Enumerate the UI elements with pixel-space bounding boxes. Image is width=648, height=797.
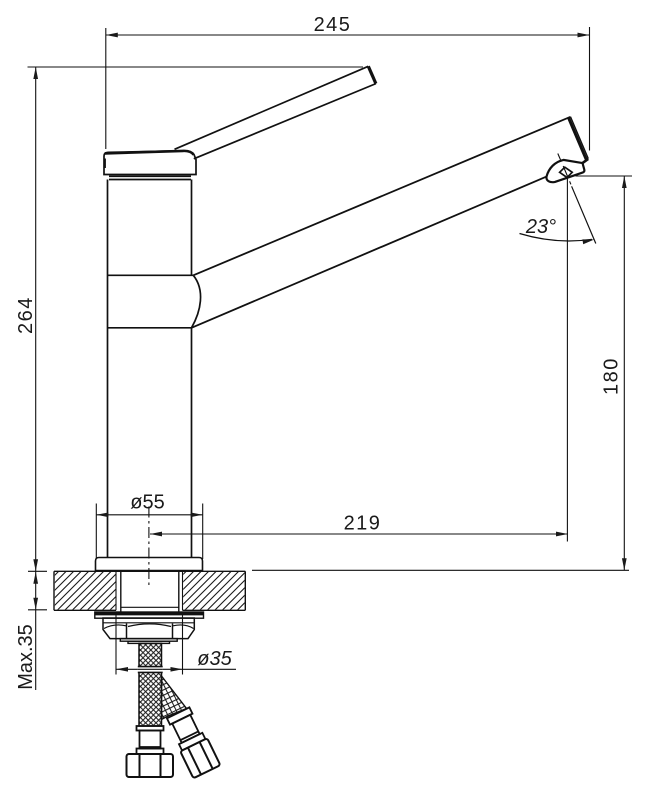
svg-text:Max.35: Max.35 (15, 624, 37, 690)
svg-text:23°: 23° (525, 216, 556, 238)
svg-text:ø55: ø55 (130, 492, 164, 514)
svg-text:180: 180 (601, 357, 623, 395)
svg-text:245: 245 (314, 14, 352, 36)
svg-text:219: 219 (344, 513, 382, 535)
svg-text:ø35: ø35 (197, 648, 232, 670)
svg-text:264: 264 (15, 296, 37, 334)
